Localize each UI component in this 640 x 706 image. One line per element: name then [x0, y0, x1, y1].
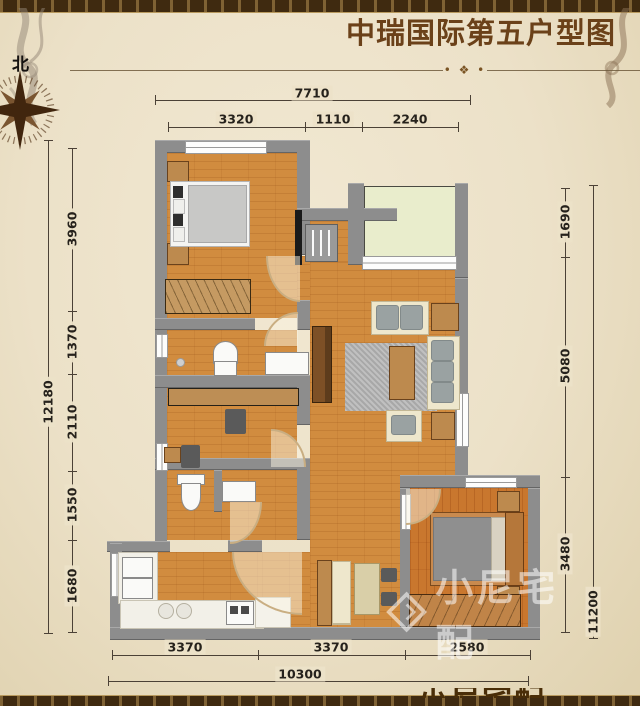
window — [362, 256, 457, 270]
dining-chair — [381, 568, 397, 582]
dim-tick — [470, 95, 471, 105]
floor-drain — [176, 358, 185, 367]
dim-label: 12180 — [41, 377, 56, 427]
dishware — [158, 603, 174, 619]
dim-tick — [561, 477, 570, 478]
header-divider-right — [487, 70, 640, 71]
top-ornamental-border — [0, 0, 640, 12]
dim-tick — [155, 95, 156, 105]
stove-burner — [241, 606, 249, 614]
desk — [168, 388, 299, 406]
sofa-cushion — [431, 382, 454, 403]
page-title: 中瑞国际第五户型图 — [330, 12, 632, 54]
pillow — [173, 186, 183, 198]
dining-cabinet — [317, 560, 332, 626]
sofa-cushion — [376, 305, 399, 330]
side-table — [431, 303, 459, 331]
dim-tick — [68, 374, 77, 375]
nightstand — [497, 491, 520, 512]
dim-label: 3320 — [216, 112, 257, 127]
sink — [222, 481, 256, 502]
stove-burner — [230, 606, 238, 614]
dim-label: 1370 — [65, 322, 80, 363]
dim-tick — [112, 650, 113, 660]
dim-label: 3370 — [311, 640, 352, 655]
dim-label: 2110 — [65, 402, 80, 443]
dim-tick — [362, 122, 363, 132]
dishware — [176, 603, 192, 619]
window — [465, 477, 517, 488]
dim-tick — [44, 140, 53, 141]
window — [156, 334, 168, 358]
side-table — [431, 412, 455, 440]
pillow — [173, 214, 183, 226]
dim-label: 3960 — [65, 209, 80, 250]
tv-cabinet — [312, 326, 332, 403]
dim-tick — [108, 676, 109, 686]
toilet-bowl — [181, 483, 201, 511]
dim-tick — [44, 633, 53, 634]
header-divider — [70, 70, 443, 71]
divider-ornament-icon: • ❖ • — [437, 60, 493, 80]
dim-tick — [258, 650, 259, 660]
coffee-table — [389, 346, 415, 400]
dim-tick — [305, 122, 306, 132]
dim-tick — [168, 122, 169, 132]
sofa-cushion — [431, 361, 454, 382]
dim-tick — [405, 650, 406, 660]
sofa-cushion — [400, 305, 423, 330]
dining-table — [354, 563, 380, 615]
dim-label: 7710 — [292, 86, 333, 101]
dim-label: 1680 — [65, 566, 80, 607]
dim-label: 1550 — [65, 485, 80, 526]
dim-label: 10300 — [275, 667, 325, 682]
dim-tick — [458, 122, 459, 132]
window — [185, 141, 267, 154]
nightstand — [167, 161, 189, 182]
wall — [155, 375, 310, 388]
wall — [155, 318, 255, 330]
wall — [297, 208, 397, 221]
dim-tick — [68, 471, 77, 472]
watermark-text: 小尼宅配 — [435, 557, 596, 667]
dim-tick — [528, 676, 529, 686]
kitchen-sink — [122, 557, 153, 578]
wardrobe — [165, 279, 251, 314]
radiator-waves-icon — [312, 230, 331, 256]
chair — [225, 409, 246, 434]
pillow — [173, 199, 185, 214]
dim-tick — [68, 540, 77, 541]
dim-tick — [561, 257, 570, 258]
wall — [297, 458, 310, 540]
sofa-cushion — [391, 415, 416, 435]
wall — [214, 470, 222, 512]
dim-label: 1110 — [313, 112, 354, 127]
watermark-logo-icon — [386, 591, 427, 633]
storage-box — [164, 447, 181, 463]
wall — [348, 183, 364, 265]
dim-label: 5080 — [558, 346, 573, 387]
dim-label: 2240 — [390, 112, 431, 127]
balcony-floor — [364, 186, 457, 258]
dim-tick — [68, 632, 77, 633]
bed-mattress — [188, 185, 247, 243]
sofa-cushion — [431, 340, 454, 361]
door-arc-study — [271, 429, 306, 467]
dim-label: 3370 — [165, 640, 206, 655]
toilet-tank — [214, 361, 237, 376]
dim-tick — [589, 185, 598, 186]
footer-brand-clipped: 小尼宅配 — [418, 688, 548, 698]
dim-tick — [561, 188, 570, 189]
kitchen-sink — [122, 578, 153, 599]
pillow — [173, 227, 185, 242]
chair — [181, 445, 200, 468]
watermark: 小尼宅配 — [386, 586, 596, 638]
wall — [297, 300, 310, 330]
radiator — [305, 224, 338, 262]
dim-line-top-segments — [168, 127, 458, 128]
dim-tick — [68, 311, 77, 312]
dim-label: 1690 — [558, 202, 573, 243]
floorplan-page: 中瑞国际第五户型图 • ❖ • 北 — [0, 0, 640, 706]
dining-bench — [332, 561, 351, 625]
sink — [265, 352, 309, 375]
dim-tick — [68, 148, 77, 149]
